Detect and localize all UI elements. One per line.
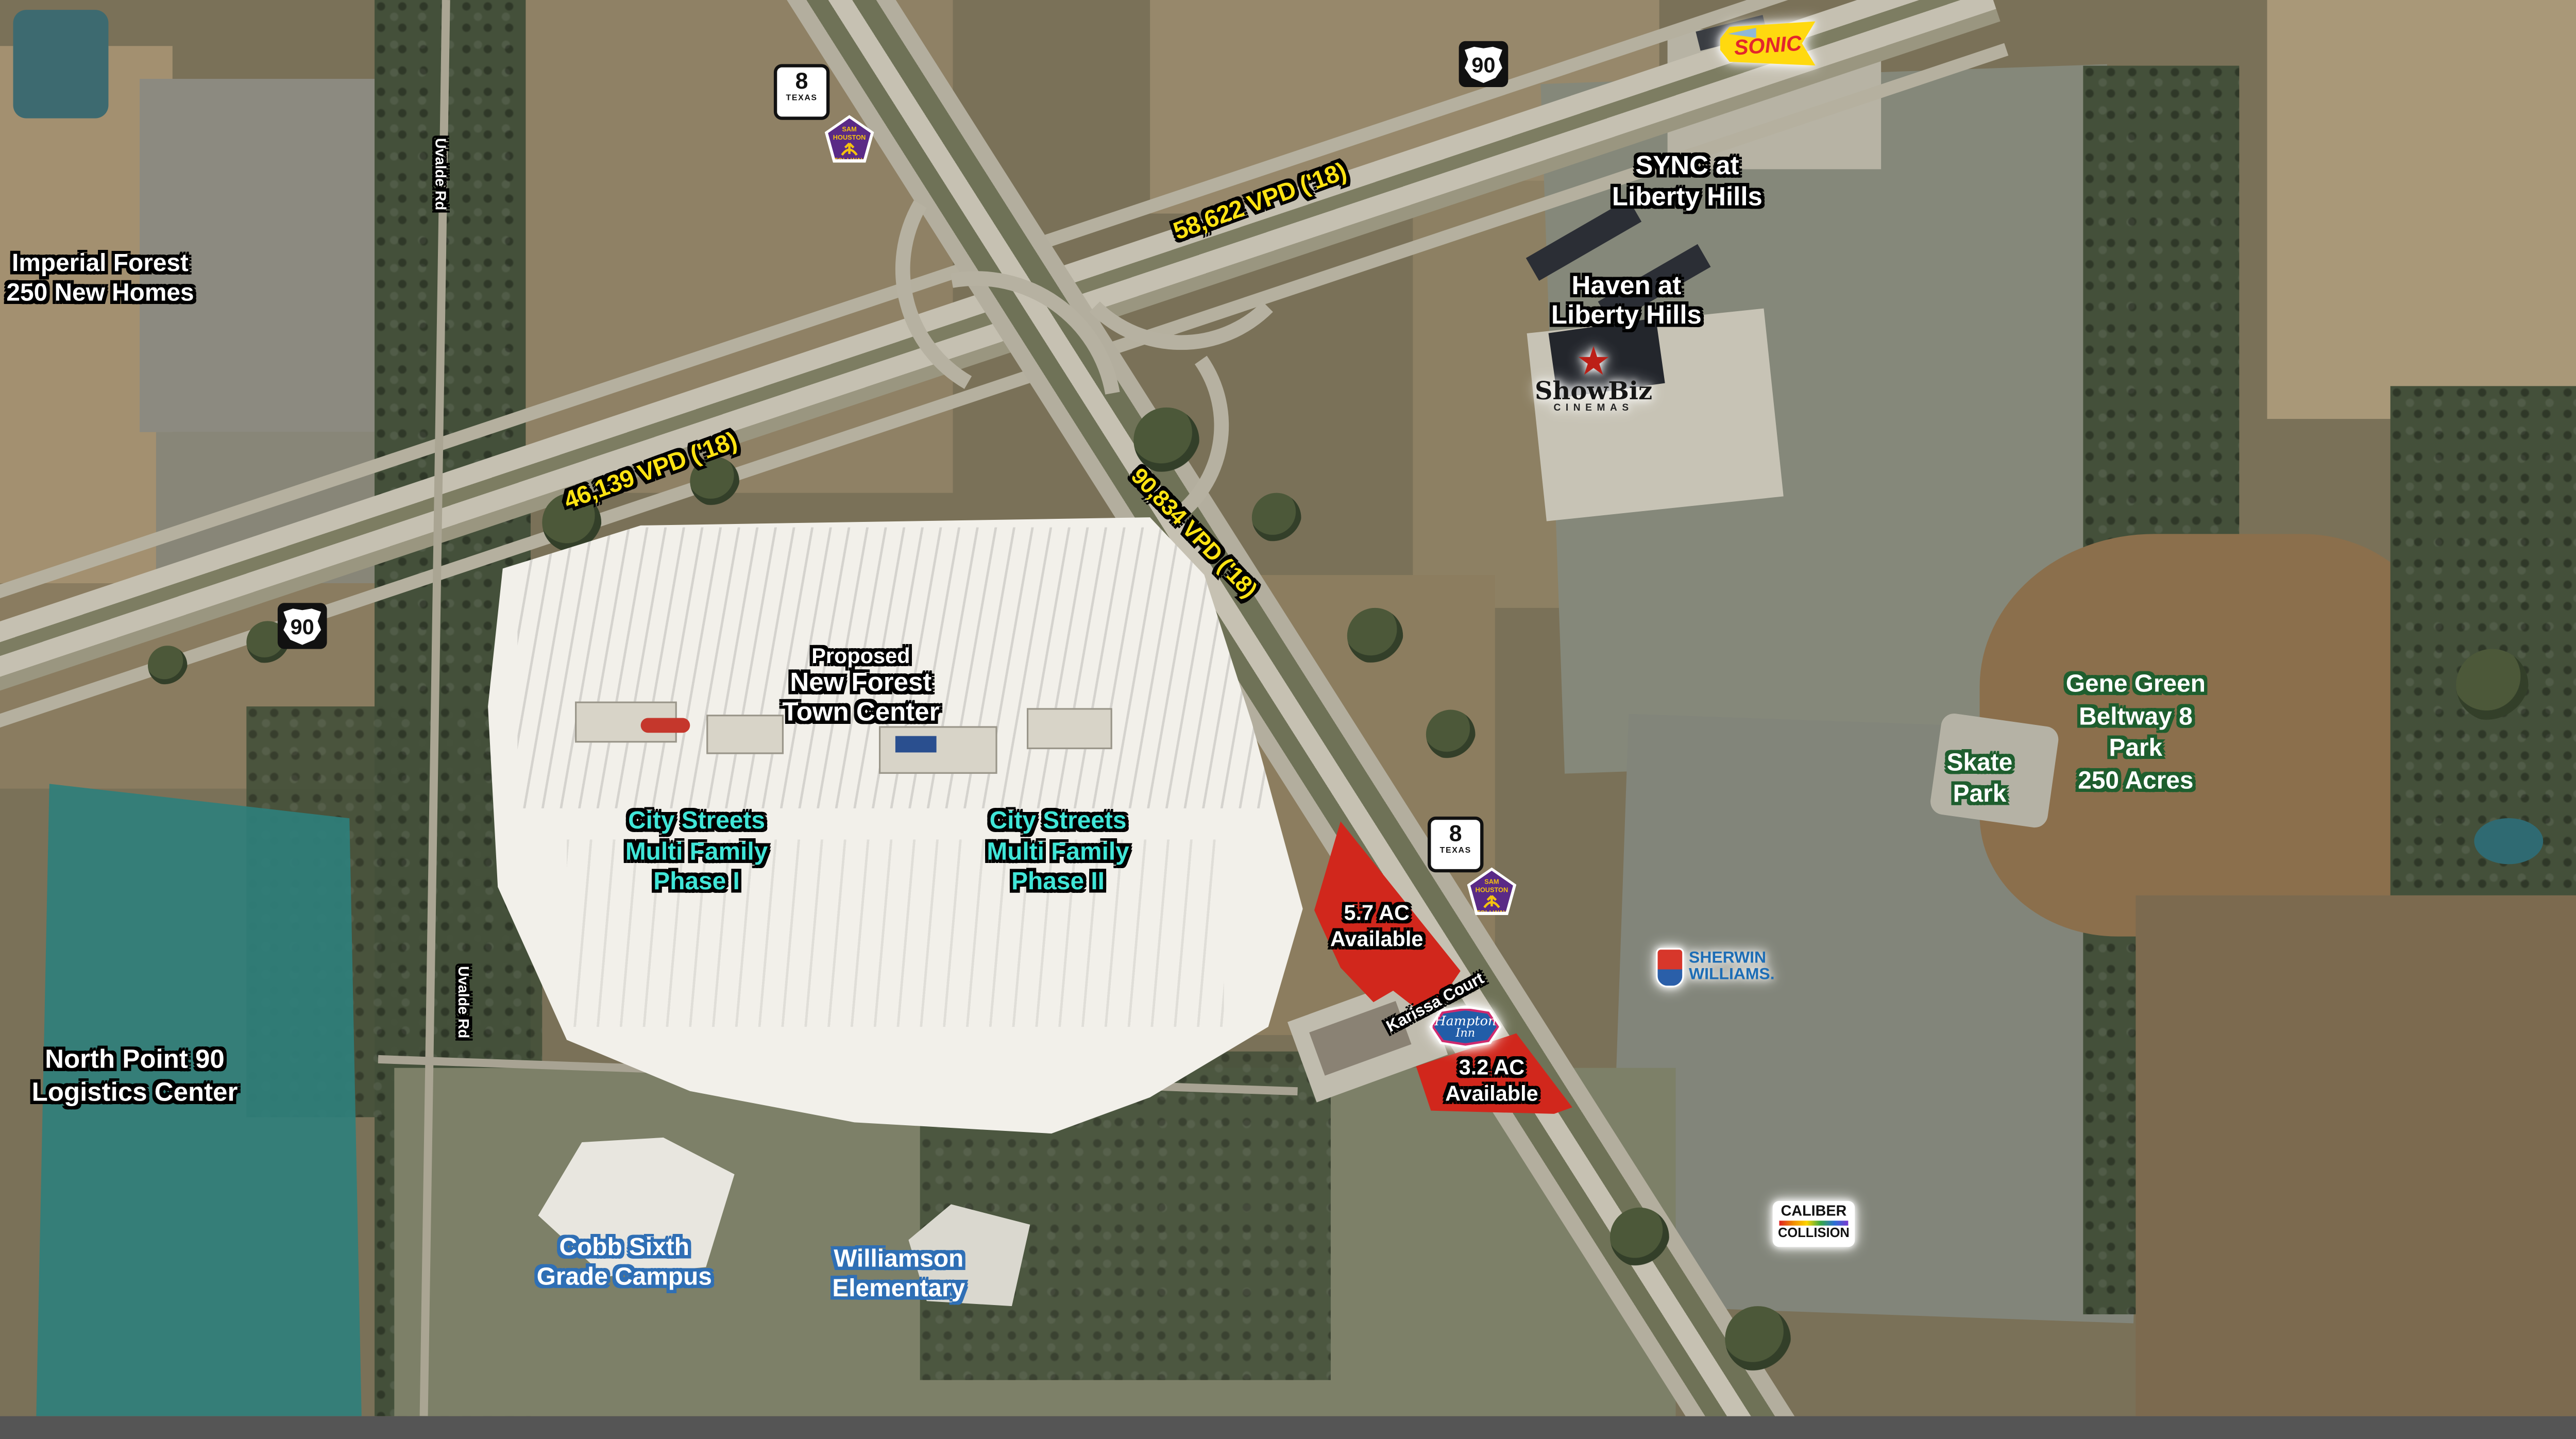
new-forest-town-center-label: Proposed New Forest Town Center [782,645,939,729]
uvalde-rd-label: Uvalde Rd [432,138,449,210]
skate-park-label: Skate Park [1947,748,2013,810]
field [2267,0,2576,419]
caliber-rainbow-stripe [1779,1221,1848,1225]
north-point-label: North Point 90 Logistics Center [32,1045,238,1111]
sync-liberty-hills-label: SYNC at Liberty Hills [1612,151,1762,213]
tx8-shield-icon: 8 TEXAS [1428,817,1483,872]
gene-green-park-label: Gene Green Beltway 8 Park 250 Acres [2066,669,2206,797]
sherwin-williams-logo: SHERWIN WILLIAMS. [1656,940,1794,995]
pond [13,10,109,118]
parcel-5-7-label: 5.7 AC Available [1330,900,1423,953]
tollway-shield-icon: SAM HOUSTON TOLLWAY [825,115,874,162]
haven-liberty-hills-label: Haven at Liberty Hills [1551,273,1702,332]
trees [1725,1306,1791,1372]
us90-shield-icon: 90 [1459,41,1509,87]
field [2136,895,2576,1416]
site-plan-store-logo [895,736,937,752]
imperial-forest-label: Imperial Forest 250 New Homes [6,250,194,309]
tollway-arrow-icon [1480,894,1503,909]
site-plan-store-logo [641,717,690,733]
trees [1426,710,1476,759]
showbiz-star-icon: ★ [1528,348,1659,378]
trees [148,646,188,685]
caliber-collision-logo: CALIBER COLLISION [1773,1201,1855,1247]
site-plan-building [1027,708,1112,749]
tx8-shield-icon: 8 TEXAS [774,64,829,120]
williamson-school-label: Williamson Elementary [832,1245,965,1305]
tollway-shield-icon: SAM HOUSTON TOLLWAY [1467,868,1517,915]
trees [1347,608,1403,664]
forest [2391,386,2576,895]
tollway-arrow-icon [838,141,861,156]
trees [1610,1208,1669,1267]
pond [2474,818,2543,864]
city-streets-phase1-label: City Streets Multi Family Phase I [625,807,768,898]
parcel-3-2-label: 3.2 AC Available [1445,1055,1538,1107]
sherwin-paint-icon [1656,948,1684,988]
showbiz-logo: ★ ShowBiz CINEMAS [1528,348,1659,434]
sonic-logo: SONIC [1720,21,1816,67]
city-streets-phase2-label: City Streets Multi Family Phase II [987,807,1129,898]
trees [2456,649,2528,721]
trees [1252,493,1301,543]
site-plan-building [706,714,784,755]
uvalde-rd-label: Uvalde Rd [455,966,472,1038]
aerial-map: 8 TEXAS SAM HOUSTON TOLLWAY 90 90 8 TEXA… [0,0,2576,1416]
site-plan-overlay [485,514,1306,1139]
cobb-school-label: Cobb Sixth Grade Campus [537,1234,712,1293]
us90-shield-icon: 90 [278,603,327,649]
